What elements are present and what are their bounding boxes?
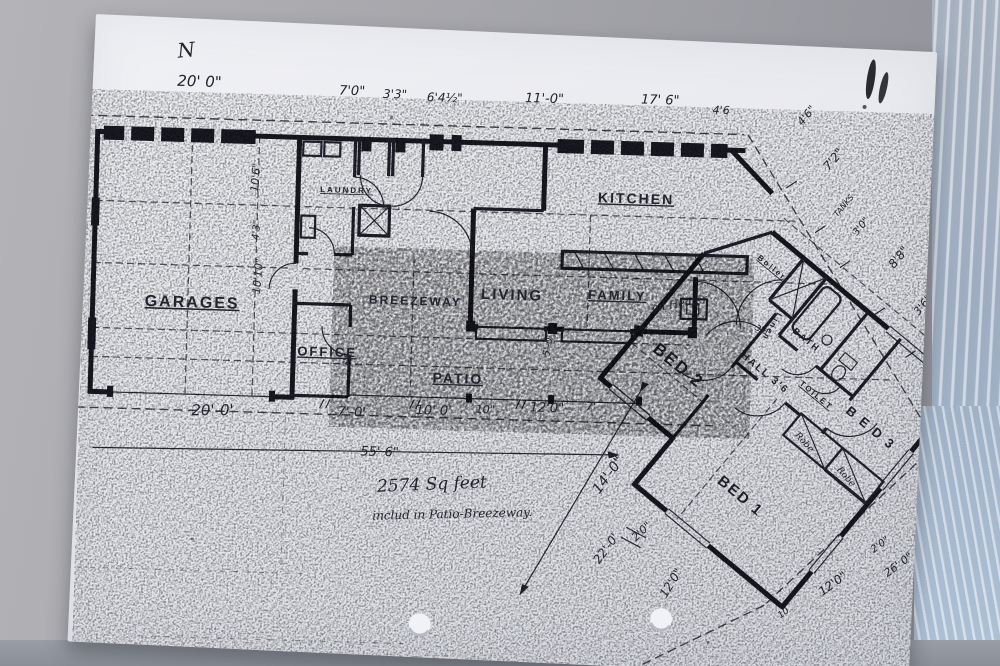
floor-plan-drawing: BED 2B E D 3BED 1HALL 3'6TOILETBATHBoile… [68, 14, 938, 666]
label-dim-col-1: 10'6" [248, 162, 263, 192]
label-room-garage: GARAGES [144, 293, 239, 313]
label-dim-bot-3: 10' 0' [415, 403, 452, 419]
label-room-breezeway: BREEZEWAY [369, 293, 462, 310]
label-room-laundry: LAUNDRY [320, 185, 373, 196]
label-dim-top-7: 4'6 [712, 104, 729, 117]
label-dim-top-2: 7'0" [339, 84, 366, 100]
label-room-family: FAMILY [588, 287, 647, 304]
label-north-mark: N [175, 37, 197, 63]
label-dim-top-4: 6'4½" [427, 90, 463, 105]
label-dim-col-2: 4'3" [251, 220, 264, 241]
label-dim-bot-2: 7'-0' [337, 405, 366, 421]
plan-frame: BED 2B E D 3BED 1HALL 3'6TOILETBATHBoile… [68, 69, 937, 666]
label-dim-bot-4: 10" [475, 403, 494, 417]
label-room-patio: PATIO [432, 369, 483, 386]
label-dim-bot-1: 20'-0' [191, 401, 233, 419]
label-dim-overall: 55' 6" [360, 444, 399, 460]
paper-sheet: BED 2B E D 3BED 1HALL 3'6TOILETBATHBoile… [68, 14, 938, 666]
photo-stage: BED 2B E D 3BED 1HALL 3'6TOILETBATHBoile… [0, 0, 1000, 666]
label-dim-bot-5: 12'0" [530, 400, 565, 416]
label-room-living: LIVING [481, 286, 543, 305]
label-dim-bot-6: 7' [586, 400, 596, 413]
label-dim-top-1: 20' 0" [177, 72, 222, 91]
label-dim-top-6: 17' 6" [641, 93, 680, 109]
label-dim-top-3: 3'3" [383, 87, 407, 102]
label-dim-small-2: 3'6 [342, 352, 354, 367]
label-room-kitchen: KITCHEN [598, 189, 675, 207]
label-dim-top-5: 11'-0" [525, 91, 564, 107]
glossy-surface-corner [914, 406, 1000, 666]
paper-labels: N [174, 36, 198, 64]
